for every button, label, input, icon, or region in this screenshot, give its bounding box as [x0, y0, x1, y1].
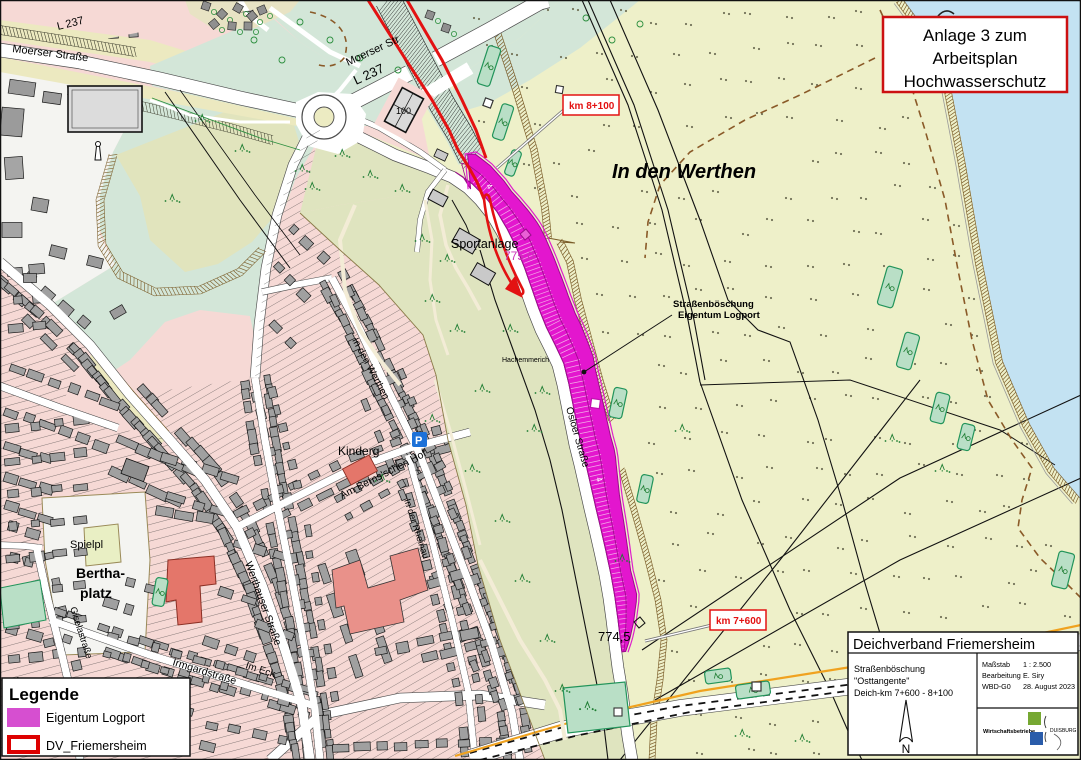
svg-text:Eigentum Logport: Eigentum Logport [678, 310, 761, 321]
svg-text:Straßenböschung: Straßenböschung [854, 664, 925, 674]
svg-text:Anlage 3 zum: Anlage 3 zum [923, 26, 1027, 45]
svg-text:DUISBURG: DUISBURG [1050, 728, 1077, 734]
svg-text:Wirtschaftsbetriebe: Wirtschaftsbetriebe [983, 729, 1035, 735]
svg-text:Deich-km 7+600 - 8+100: Deich-km 7+600 - 8+100 [854, 688, 953, 698]
svg-text:Arbeitsplan: Arbeitsplan [932, 49, 1017, 68]
svg-text:1 : 2.500: 1 : 2.500 [1023, 660, 1051, 669]
svg-text:DV_Friemersheim: DV_Friemersheim [46, 739, 147, 753]
svg-text:P: P [415, 435, 422, 447]
svg-text:775,0: 775,0 [504, 249, 534, 263]
svg-text:Straßenböschung: Straßenböschung [673, 299, 754, 310]
svg-text:Hachemmerich: Hachemmerich [502, 357, 549, 364]
svg-text:Deichverband Friemersheim: Deichverband Friemersheim [853, 637, 1035, 653]
svg-text:Maßstab: Maßstab [982, 660, 1010, 669]
svg-text:28. August 2023: 28. August 2023 [1023, 682, 1075, 691]
svg-text:km 8+100: km 8+100 [569, 101, 615, 112]
svg-text:Hochwasserschutz: Hochwasserschutz [904, 72, 1047, 91]
svg-text:"Osttangente": "Osttangente" [854, 676, 909, 686]
svg-text:100: 100 [396, 106, 411, 116]
svg-text:In den Werthen: In den Werthen [612, 161, 756, 183]
svg-text:Bearbeitung: Bearbeitung [982, 671, 1021, 680]
svg-text:WBD-G0: WBD-G0 [982, 682, 1011, 691]
svg-text:platz: platz [80, 585, 112, 601]
svg-text:km 7+600: km 7+600 [716, 616, 762, 627]
svg-text:Spielpl: Spielpl [70, 539, 103, 551]
svg-text:Bertha-: Bertha- [76, 565, 125, 581]
svg-text:Eigentum Logport: Eigentum Logport [46, 711, 145, 725]
svg-text:Kinderg: Kinderg [338, 444, 379, 458]
svg-text:E. Siry: E. Siry [1023, 671, 1045, 680]
svg-text:774,5: 774,5 [598, 629, 631, 644]
svg-text:N: N [902, 742, 911, 756]
svg-text:Legende: Legende [9, 685, 79, 704]
